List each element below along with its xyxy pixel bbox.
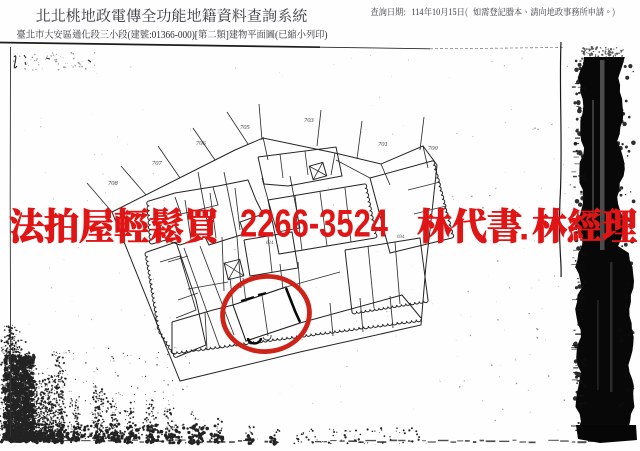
svg-text:]: ]	[226, 29, 229, 40]
svg-text:10: 10	[432, 7, 441, 18]
svg-text:114: 114	[411, 7, 424, 18]
svg-text:705: 705	[240, 124, 251, 131]
svg-text:700: 700	[428, 145, 439, 152]
svg-text:): )	[324, 29, 327, 40]
svg-text:(: (	[128, 29, 131, 40]
svg-text::01366-000)[: :01366-000)[	[149, 29, 198, 40]
svg-text:15: 15	[448, 7, 457, 18]
svg-text:694: 694	[397, 235, 405, 240]
svg-text:706: 706	[196, 140, 207, 147]
svg-text:707: 707	[152, 160, 163, 167]
svg-text:(: (	[275, 29, 278, 40]
svg-text:701: 701	[378, 141, 388, 148]
svg-text:703: 703	[304, 117, 315, 124]
svg-text:2266-3524: 2266-3524	[240, 203, 388, 246]
svg-text:708: 708	[108, 180, 119, 187]
svg-text:.: .	[519, 207, 529, 248]
